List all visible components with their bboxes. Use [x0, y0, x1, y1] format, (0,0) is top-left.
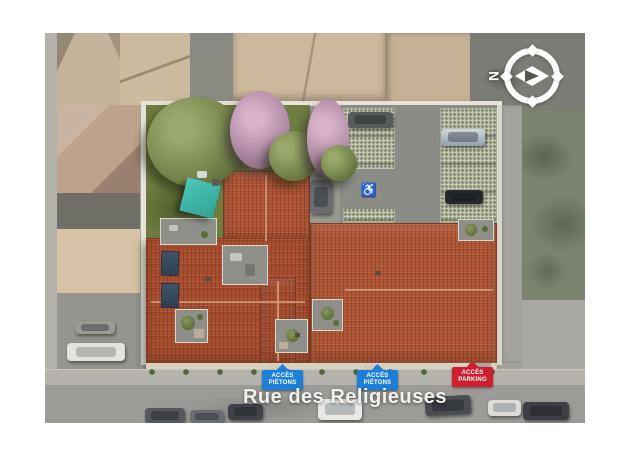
garden-chair	[212, 179, 219, 186]
neighbor-roof	[57, 229, 140, 293]
roof-ridge	[265, 175, 267, 241]
chimney	[375, 271, 381, 275]
street-parked-car	[523, 402, 569, 420]
side-street-left	[45, 33, 57, 423]
badge-line2: PARKING	[453, 377, 492, 384]
neighbor-path-right	[500, 105, 522, 363]
aerial-photo: ♿	[45, 33, 585, 423]
neighbor-hip-roof	[57, 105, 140, 193]
patio-courtyard	[275, 319, 308, 353]
roof-ridge	[345, 289, 493, 291]
parked-car	[75, 321, 115, 334]
street-name-label: Rue des Religieuses	[195, 386, 495, 409]
site-wall-right	[497, 105, 502, 365]
badge-line1: ACCÈS	[358, 373, 397, 380]
parking-stalls-right	[440, 108, 497, 223]
chimney	[205, 277, 211, 281]
neighbor-roof	[385, 33, 470, 103]
parked-car-vertical	[310, 180, 332, 214]
neighbor-roof	[120, 33, 190, 105]
badge-line1: ACCÈS	[453, 370, 492, 377]
neighbor-roof	[57, 33, 120, 105]
compass-rose-icon: N	[502, 46, 562, 106]
solar-panel	[161, 251, 180, 277]
compass-north-label: N	[486, 71, 502, 81]
marketing-image-frame: ♿	[0, 0, 640, 470]
tree-green	[147, 97, 245, 187]
street-parked-car	[190, 410, 224, 423]
neighbor-courtyard	[190, 33, 233, 105]
building-roof-right	[310, 223, 497, 365]
parked-car-grey	[348, 112, 393, 128]
neighbor-lot	[522, 300, 585, 369]
neighbor-green-field	[522, 110, 585, 300]
badge-line1: ACCÈS	[263, 373, 302, 380]
parked-van	[67, 343, 125, 361]
roof-terrace	[222, 245, 268, 285]
solar-panel	[161, 283, 180, 309]
parked-car-silver	[441, 129, 485, 146]
garden-table	[197, 171, 207, 178]
patio-courtyard	[458, 219, 494, 241]
sidewalk-bushes	[146, 368, 497, 376]
access-badge-parking: ACCÈS PARKING	[452, 367, 493, 387]
parked-car-black	[445, 190, 483, 204]
roof-terrace	[160, 218, 217, 245]
chimney	[295, 333, 300, 337]
handicap-parking-icon: ♿	[361, 183, 377, 196]
street-parked-car	[145, 408, 185, 423]
tree-green	[321, 145, 357, 181]
patio-courtyard	[312, 299, 343, 331]
neighbor-shadow	[57, 193, 140, 229]
patio-courtyard	[175, 309, 208, 343]
